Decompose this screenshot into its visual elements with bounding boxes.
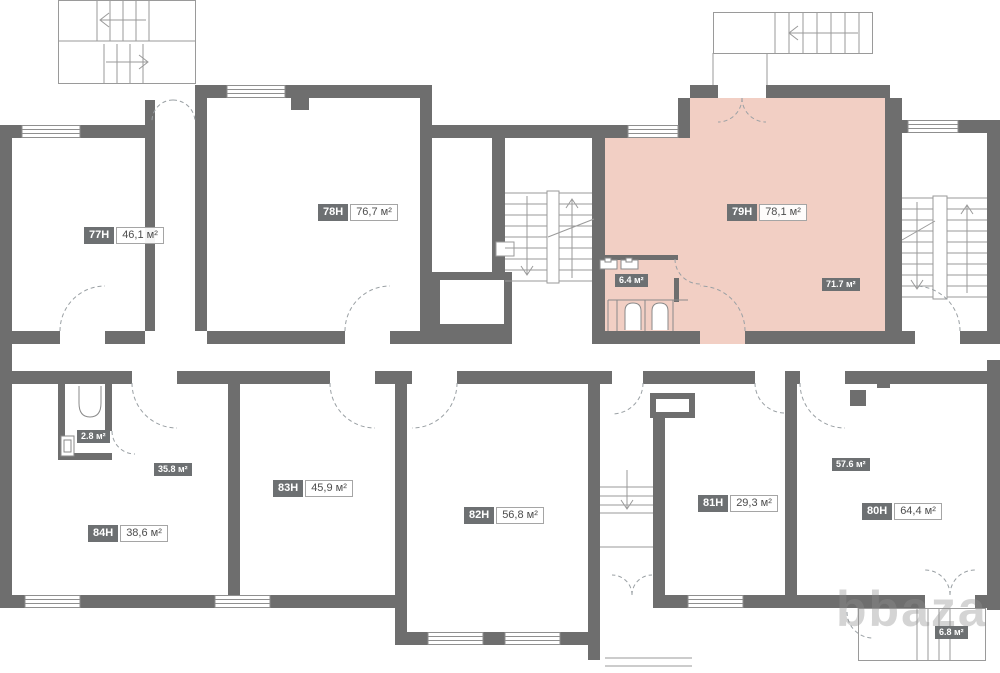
area-badge-79h-room: 71.7 м² [822,278,860,291]
unit-label-77h[interactable]: 77H 46,1 м² [84,227,164,244]
sink-icon [61,436,74,456]
duct-shaft [653,396,692,415]
utility-box [496,242,514,256]
unit-label-81h[interactable]: 81H 29,3 м² [698,495,778,512]
unit-area: 78,1 м² [759,204,807,221]
area-badge-wc: 2.8 м² [77,430,110,443]
floor-plan-drawing [0,0,1000,673]
unit-id: 79H [727,204,757,221]
unit-area: 76,7 м² [350,204,398,221]
area-badge-84h-room: 35.8 м² [154,463,192,476]
toilet-icon [625,303,641,330]
unit-id: 78H [318,204,348,221]
unit-area: 46,1 м² [116,227,164,244]
unit-label-82h[interactable]: 82H 56,8 м² [464,507,544,524]
unit-area: 64,4 м² [894,503,942,520]
unit-area: 38,6 м² [120,525,168,542]
unit-id: 81H [698,495,728,512]
area-badge-stair: 6.8 м² [935,626,968,639]
unit-label-84h[interactable]: 84H 38,6 м² [88,525,168,542]
toilet-icon [79,386,101,417]
area-badge-bathroom: 6.4 м² [615,274,648,287]
unit-label-79h[interactable]: 79H 78,1 м² [727,204,807,221]
unit-label-80h[interactable]: 80H 64,4 м² [862,503,942,520]
unit-area: 45,9 м² [305,480,353,497]
unit-area: 56,8 м² [496,507,544,524]
unit-label-78h[interactable]: 78H 76,7 м² [318,204,398,221]
unit-id: 80H [862,503,892,520]
unit-label-83h[interactable]: 83H 45,9 м² [273,480,353,497]
unit-id: 82H [464,507,494,524]
area-badge-80h-room: 57.6 м² [832,458,870,471]
unit-id: 83H [273,480,303,497]
unit-area: 29,3 м² [730,495,778,512]
unit-id: 77H [84,227,114,244]
elevator-shaft [436,276,508,328]
unit-id: 84H [88,525,118,542]
floor-plan: bbaza 77H 46,1 м² 78H 76,7 м² 79H 78,1 м… [0,0,1000,673]
toilet-icon [652,303,668,330]
